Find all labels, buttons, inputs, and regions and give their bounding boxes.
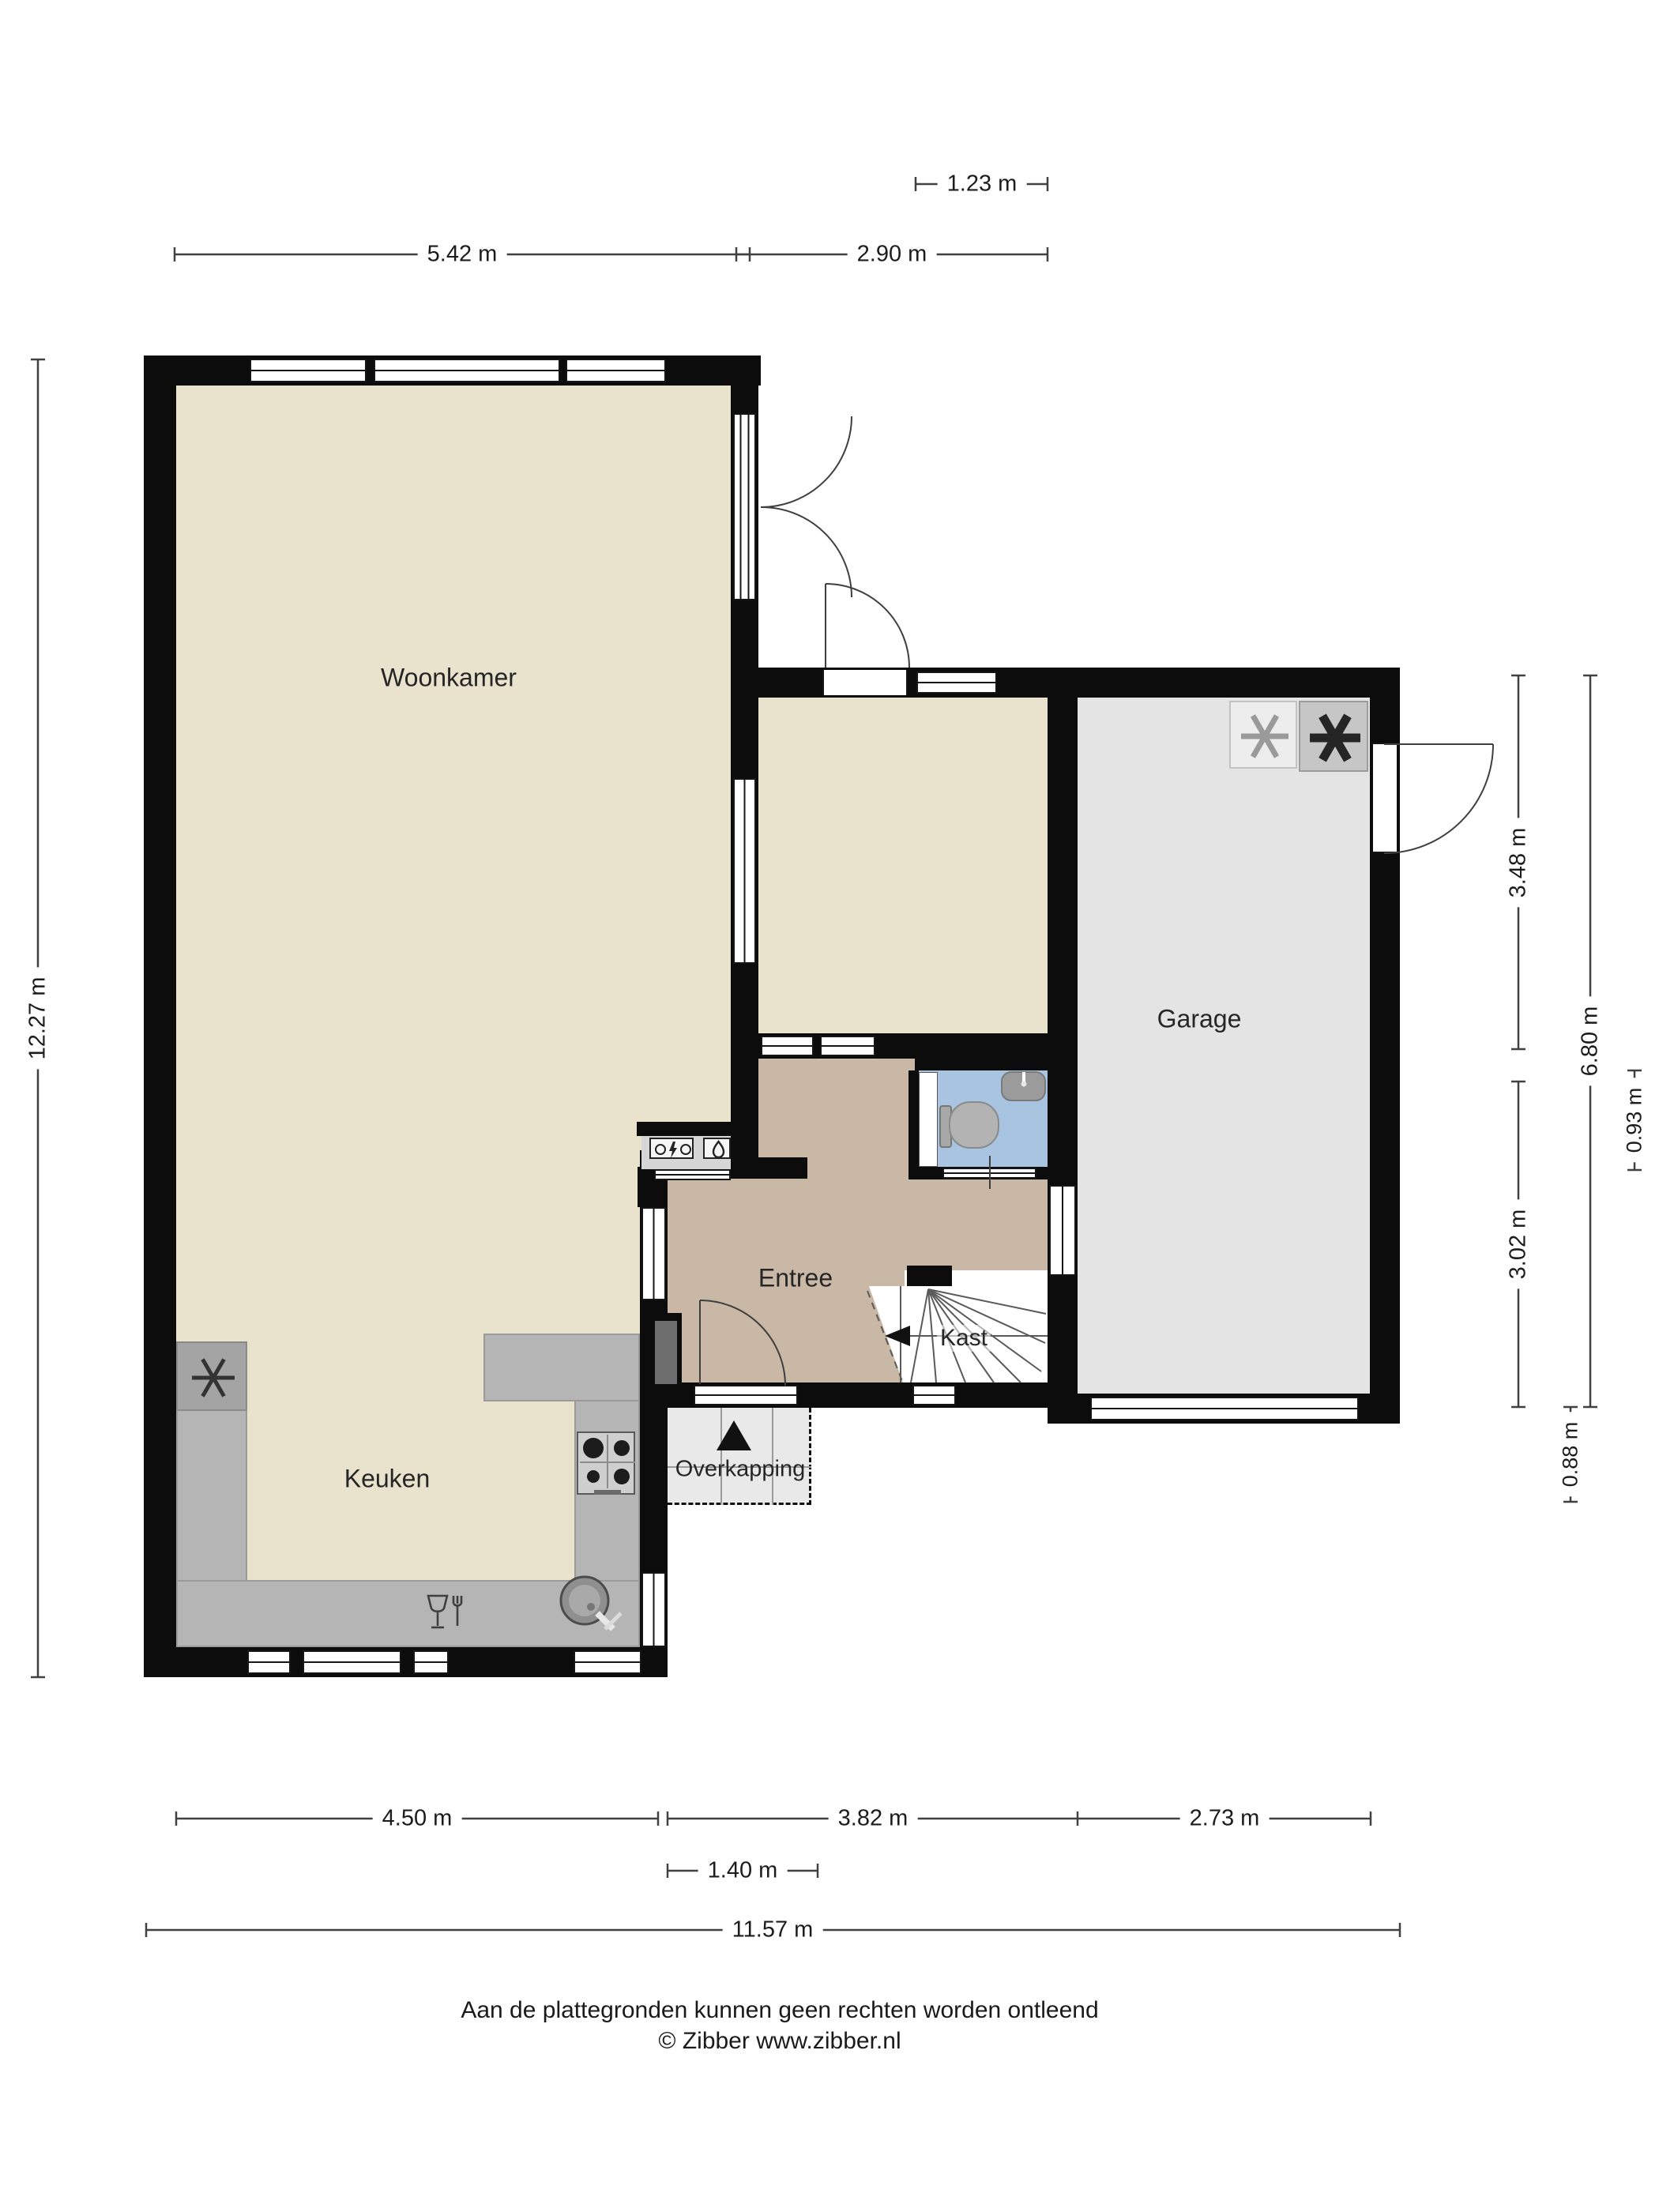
label-keuken: Keuken <box>344 1465 431 1494</box>
dim-right-lower: 3.02 m <box>1505 1200 1533 1289</box>
dim-right-small-mid: 0.93 m <box>1622 1078 1648 1163</box>
dim-top-left: 5.42 m <box>418 241 507 269</box>
label-garage: Garage <box>1157 1005 1242 1034</box>
dim-right-upper: 3.48 m <box>1505 818 1533 908</box>
dim-right-small-bottom: 0.88 m <box>1558 1413 1584 1497</box>
dim-bottom-garage: 2.73 m <box>1180 1805 1270 1833</box>
dim-top-small: 1.23 m <box>938 171 1027 198</box>
label-entree: Entree <box>758 1264 833 1293</box>
footer-copyright: © Zibber www.zibber.nl <box>658 2028 901 2055</box>
footer-disclaimer: Aan de plattegronden kunnen geen rechten… <box>461 1997 1098 2024</box>
dim-left-total: 12.27 m <box>24 968 52 1070</box>
plan-linework <box>0 0 1659 2212</box>
dim-bottom-total: 11.57 m <box>723 1917 823 1944</box>
dim-bottom-kitchen: 4.50 m <box>373 1805 462 1833</box>
dim-right-total: 6.80 m <box>1577 997 1604 1086</box>
dim-top-right: 2.90 m <box>848 241 937 269</box>
label-kast: Kast <box>937 1325 991 1352</box>
label-overkapping: Overkapping <box>675 1457 805 1483</box>
dim-bottom-small: 1.40 m <box>698 1857 788 1885</box>
label-woonkamer: Woonkamer <box>381 664 517 693</box>
floorplan: Woonkamer Garage Entree Kast Keuken Over… <box>0 0 1659 2212</box>
dim-bottom-middle: 3.82 m <box>829 1805 918 1833</box>
